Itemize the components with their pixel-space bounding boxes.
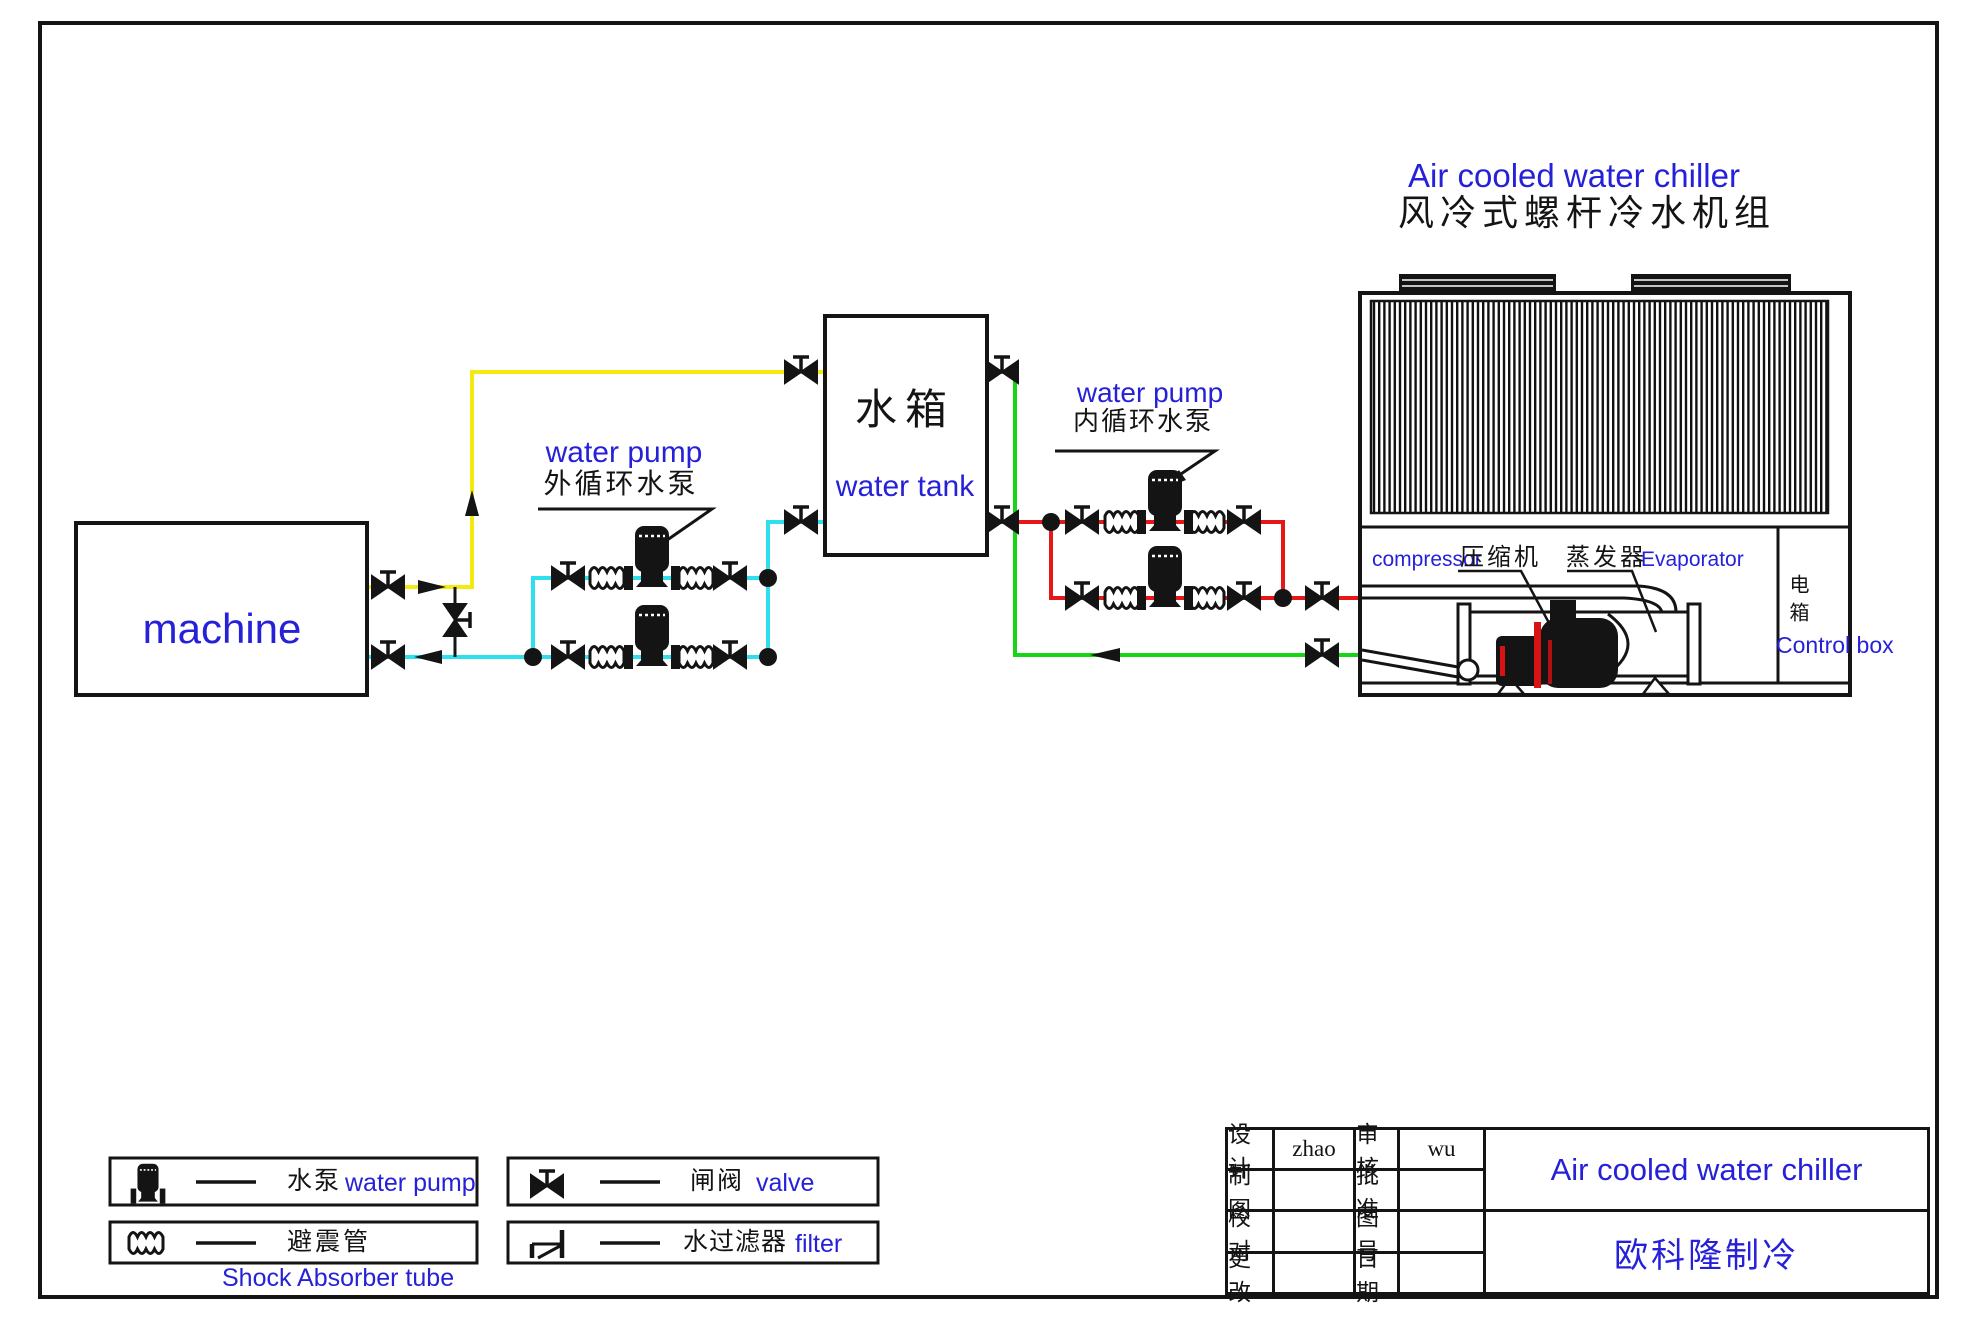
tb-date-label: 日期 [1356, 1254, 1397, 1292]
control-box-label-en: Control box [1776, 633, 1894, 658]
valve-icon [785, 507, 817, 533]
legend-filter-label-en: filter [795, 1231, 842, 1259]
water-tank-label-en: water tank [836, 470, 974, 503]
internal-pump-label-cn: 内循环水泵 [1073, 408, 1213, 437]
external-pump-label-en: water pump [546, 436, 703, 469]
valve-icon [1306, 640, 1338, 666]
valve-icon [785, 357, 817, 383]
condenser-fins [1371, 301, 1828, 513]
water-tank-box [825, 316, 987, 555]
legend-valve-label-en: valve [756, 1170, 814, 1198]
tb-approve-value [1400, 1171, 1483, 1209]
valve-icon [714, 642, 746, 668]
valve-icon [1228, 583, 1260, 609]
flow-arrow-right-icon [418, 580, 446, 594]
valve-icon [986, 357, 1018, 383]
legend-shock-label-cn: 避震管 [287, 1229, 371, 1257]
shock-absorber-icon [1190, 512, 1224, 533]
water-tank-label-cn: 水箱 [855, 388, 955, 434]
tb-change-value [1275, 1254, 1353, 1292]
compressor-label-cn: 压缩机 [1460, 545, 1541, 571]
machine-label: machine [143, 606, 302, 652]
tb-drawingno-value [1400, 1212, 1483, 1251]
internal-pump-label-en: water pump [1077, 378, 1223, 409]
shock-absorber-icon [590, 568, 624, 589]
evaporator-label-en: Evaporator [1641, 548, 1744, 571]
shock-absorber-icon [1190, 588, 1224, 609]
pump-icon [1137, 546, 1193, 610]
title-english: Air cooled water chiller [1408, 158, 1740, 194]
tb-change-label: 更改 [1228, 1254, 1272, 1292]
valve-icon [444, 604, 470, 636]
shock-absorber-icon [679, 568, 713, 589]
legend-pump-label-en: water pump [345, 1170, 476, 1198]
title-block: 设计 zhao 审核 wu 制图 批准 校对 图号 更改 日期 Air cool… [1225, 1127, 1930, 1295]
valve-icon [552, 642, 584, 668]
drawing-sheet: Air cooled water chiller 风冷式螺杆冷水机组 machi… [0, 0, 1965, 1323]
legend-valve-label-cn: 闸阀 [690, 1168, 744, 1196]
valve-icon [372, 642, 404, 668]
flow-arrow-up-icon [465, 490, 479, 516]
flow-arrow-left-icon [1090, 648, 1120, 662]
external-pump-label-cn: 外循环水泵 [543, 470, 698, 501]
tb-date-value [1400, 1254, 1483, 1292]
valve-icon [1066, 507, 1098, 533]
valve-icon [1306, 583, 1338, 609]
valve-icon [372, 572, 404, 598]
title-chinese: 风冷式螺杆冷水机组 [1398, 194, 1776, 234]
valve-icon [1228, 507, 1260, 533]
shock-absorber-icon [1105, 588, 1139, 609]
legend-filter-label-cn: 水过滤器 [683, 1229, 787, 1257]
tb-review-value: wu [1400, 1130, 1483, 1168]
valve-icon [1066, 583, 1098, 609]
control-box-label-cn: 电箱 [1786, 574, 1808, 630]
tb-design-value: zhao [1275, 1130, 1353, 1168]
flow-arrow-left-icon [414, 650, 442, 664]
valve-icon [714, 563, 746, 589]
tb-product-name: Air cooled water chiller [1486, 1130, 1927, 1209]
tb-proof-value [1275, 1212, 1353, 1251]
tb-draft-value [1275, 1171, 1353, 1209]
tb-company-name: 欧科隆制冷 [1486, 1212, 1927, 1292]
valve-icon [552, 563, 584, 589]
evaporator-label-cn: 蒸发器 [1566, 545, 1647, 571]
shock-absorber-icon [1105, 512, 1139, 533]
pump-icon [624, 605, 680, 669]
shock-absorber-icon [129, 1233, 163, 1254]
shock-absorber-icon [679, 647, 713, 668]
chiller-top-louver [1631, 274, 1791, 292]
legend-shock-label-en: Shock Absorber tube [222, 1265, 454, 1293]
chiller-top-louver [1399, 274, 1556, 292]
legend-pump-label-cn: 水泵 [287, 1168, 341, 1196]
shock-absorber-icon [590, 647, 624, 668]
